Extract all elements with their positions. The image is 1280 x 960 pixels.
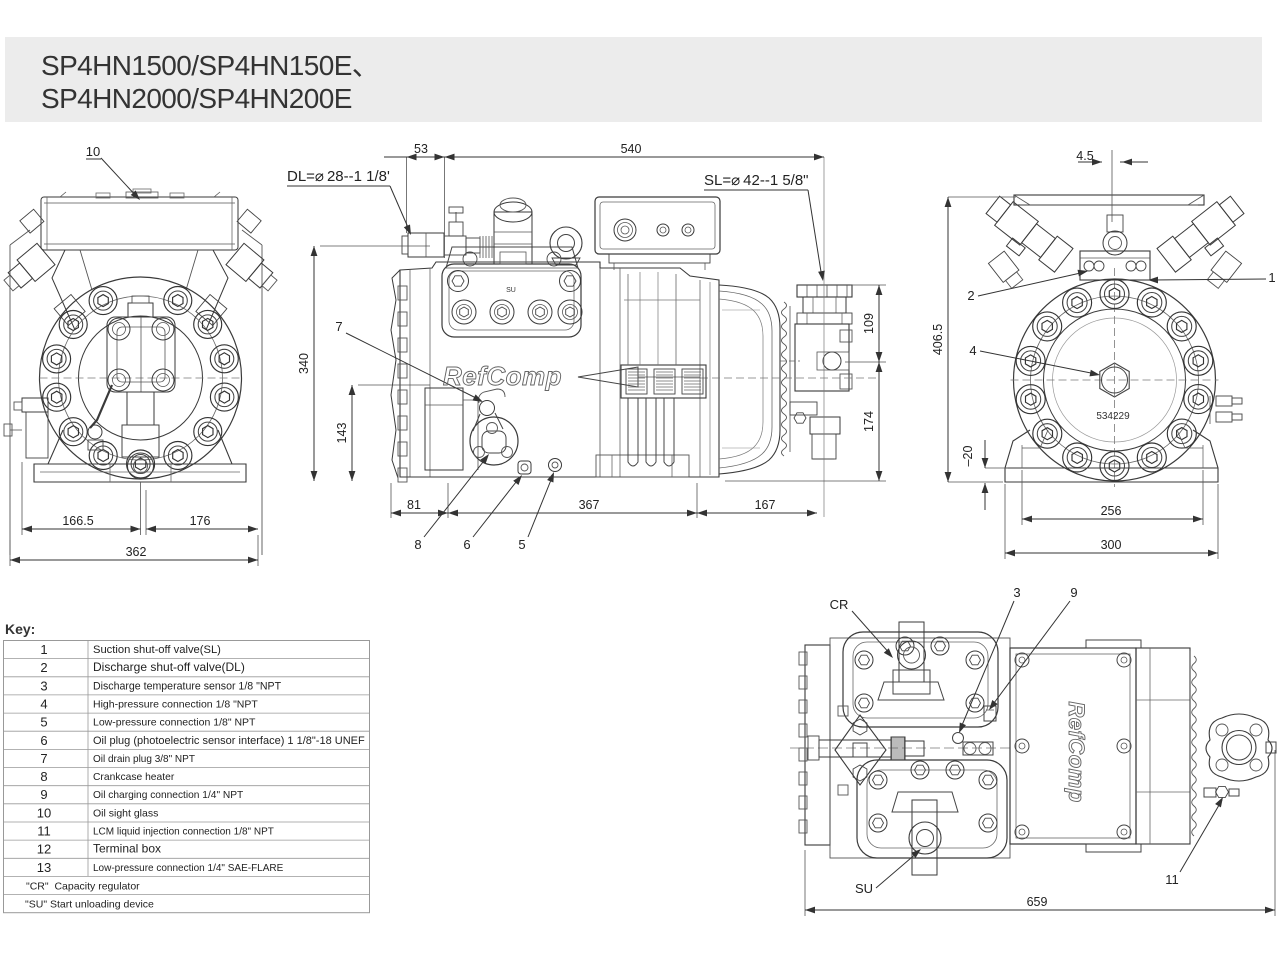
svg-text:4: 4 — [40, 697, 47, 712]
svg-text:Discharge temperature sensor 1: Discharge temperature sensor 1/8 "NPT — [93, 680, 282, 692]
svg-text:13: 13 — [37, 860, 51, 875]
svg-text:256: 256 — [1101, 504, 1122, 518]
svg-text:10: 10 — [37, 805, 51, 820]
svg-text:Low-pressure connection 1/4" S: Low-pressure connection 1/4" SAE-FLARE — [93, 863, 284, 874]
svg-text:2: 2 — [967, 288, 974, 303]
svg-text:11: 11 — [1165, 872, 1179, 887]
svg-text:Low-pressure connection 1/8" N: Low-pressure connection 1/8" NPT — [93, 717, 256, 729]
svg-text:53: 53 — [414, 142, 428, 156]
svg-text:LCM liquid injection connectio: LCM liquid injection connection 1/8" NPT — [93, 827, 274, 838]
svg-text:Crankcase heater: Crankcase heater — [93, 772, 175, 783]
svg-text:11: 11 — [37, 824, 51, 839]
svg-text:1: 1 — [40, 642, 47, 657]
svg-text:Oil plug (photoelectric senso: Oil plug (photoelectric sensor interface… — [93, 735, 365, 747]
svg-text:534229: 534229 — [1096, 411, 1130, 422]
svg-text:12: 12 — [37, 842, 51, 857]
svg-text:SU: SU — [506, 287, 516, 294]
svg-text:Oil charging connection 1/4" N: Oil charging connection 1/4" NPT — [93, 790, 243, 801]
svg-text:166.5: 166.5 — [62, 514, 93, 528]
svg-text:CR: CR — [830, 597, 849, 612]
svg-text:5: 5 — [518, 537, 525, 552]
svg-text:6: 6 — [463, 537, 470, 552]
svg-text:Discharge shut-off valve(DL): Discharge shut-off valve(DL) — [93, 660, 245, 674]
svg-text:RefComp: RefComp — [443, 361, 562, 391]
svg-text:High-pressure connection 1/8 ": High-pressure connection 1/8 "NPT — [93, 699, 258, 711]
svg-text:5: 5 — [40, 715, 47, 730]
svg-text:RefComp: RefComp — [1064, 701, 1089, 802]
svg-text:109: 109 — [862, 313, 876, 334]
svg-text:659: 659 — [1027, 895, 1048, 909]
svg-text:7: 7 — [40, 751, 47, 766]
svg-text:Suction shut-off valve(SL): Suction shut-off valve(SL) — [93, 644, 221, 656]
svg-text:–20: –20 — [961, 446, 975, 467]
svg-text:300: 300 — [1101, 538, 1122, 552]
svg-text:9: 9 — [1070, 585, 1077, 600]
svg-text:"SU" Start unloading device: "SU" Start unloading device — [25, 899, 154, 911]
svg-text:Oil sight glass: Oil sight glass — [93, 807, 158, 819]
svg-text:6: 6 — [40, 733, 47, 748]
svg-text:540: 540 — [621, 142, 642, 156]
svg-text:7: 7 — [335, 319, 342, 334]
svg-text:1: 1 — [1268, 270, 1275, 285]
svg-text:406.5: 406.5 — [931, 324, 945, 355]
svg-text:Oil drain plug 3/8" NPT: Oil drain plug 3/8" NPT — [93, 754, 195, 765]
svg-text:"CR" Capacity regulator: "CR" Capacity regulator — [26, 880, 140, 892]
svg-text:DL=⌀ 28--1 1/8': DL=⌀ 28--1 1/8' — [287, 168, 390, 185]
svg-text:4: 4 — [969, 343, 976, 358]
svg-text:340: 340 — [297, 353, 311, 374]
svg-text:10: 10 — [86, 144, 100, 159]
svg-text:174: 174 — [862, 411, 876, 432]
svg-text:Terminal box: Terminal box — [93, 842, 161, 856]
svg-text:143: 143 — [335, 423, 349, 444]
svg-text:9: 9 — [40, 787, 47, 802]
svg-text:176: 176 — [190, 514, 211, 528]
svg-text:Key:: Key: — [5, 621, 35, 637]
svg-text:SU: SU — [855, 881, 873, 896]
svg-text:SL=⌀ 42--1 5/8": SL=⌀ 42--1 5/8" — [704, 172, 809, 189]
svg-text:81: 81 — [407, 498, 421, 512]
svg-text:8: 8 — [414, 537, 421, 552]
svg-text:SP4HN1500/SP4HN150E、: SP4HN1500/SP4HN150E、 — [41, 50, 379, 81]
svg-text:167: 167 — [755, 498, 776, 512]
svg-text:3: 3 — [1013, 585, 1020, 600]
svg-text:4.5: 4.5 — [1076, 149, 1093, 163]
svg-text:SP4HN2000/SP4HN200E: SP4HN2000/SP4HN200E — [41, 83, 352, 114]
svg-text:367: 367 — [579, 498, 600, 512]
svg-text:3: 3 — [40, 678, 47, 693]
svg-text:362: 362 — [126, 545, 147, 559]
svg-text:8: 8 — [40, 769, 47, 784]
svg-text:2: 2 — [40, 660, 47, 675]
